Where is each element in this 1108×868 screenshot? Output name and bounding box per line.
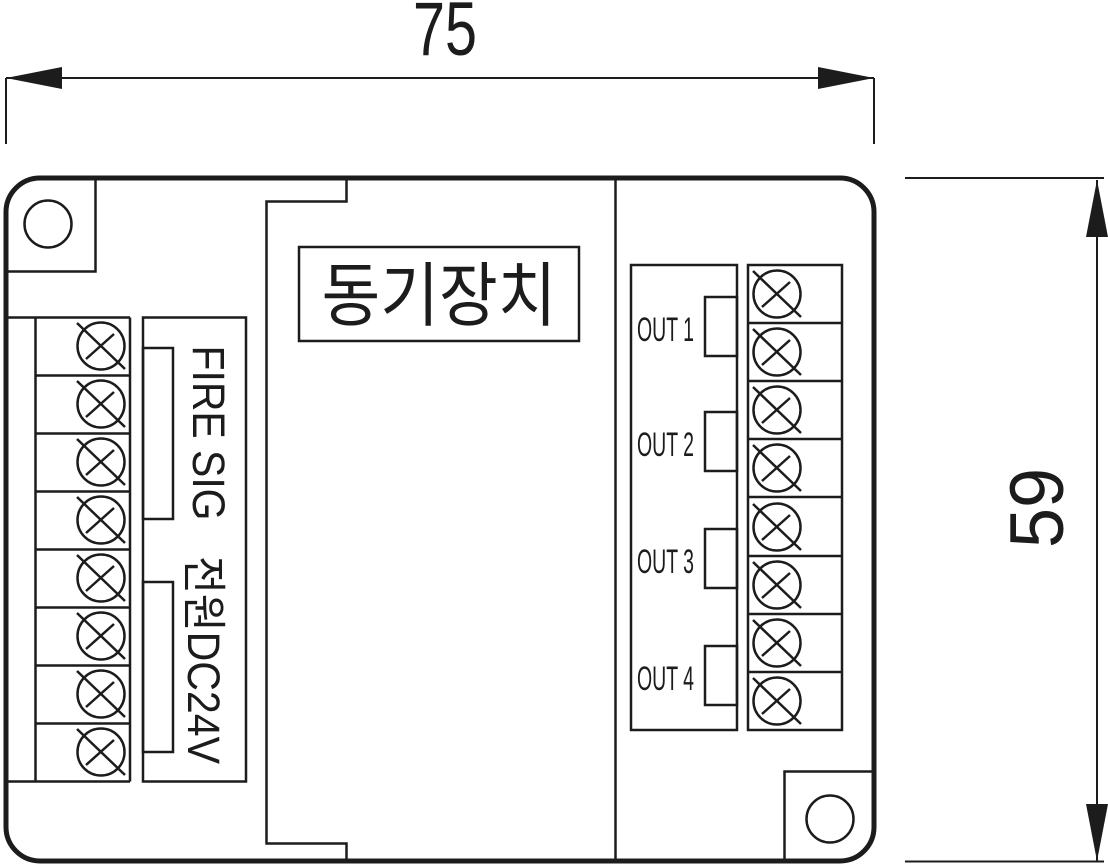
screw-terminal (753, 678, 801, 725)
screw-terminal (753, 620, 801, 667)
screw-terminal (753, 504, 801, 551)
output-label-box: OUT 1 OUT 2 OUT 3 OUT 4 (631, 265, 737, 730)
power-dc24v-label: 전원DC24V (178, 556, 229, 764)
screw-terminal (77, 555, 125, 602)
left-strip-cell-dividers (36, 376, 131, 724)
out3-label: OUT 3 (637, 543, 694, 581)
fire-sig-group-bracket (143, 348, 173, 519)
out4-label: OUT 4 (637, 660, 694, 698)
title-plate: 동기장치 (299, 247, 579, 341)
screw-terminal (77, 497, 125, 544)
width-arrow-right (818, 67, 874, 89)
width-dimension-label: 75 (413, 0, 477, 72)
mounting-hole-top-left (25, 201, 72, 248)
power-group-bracket (143, 582, 173, 752)
height-arrow-bottom (1086, 804, 1108, 861)
screw-terminal (77, 729, 125, 776)
width-arrow-left (6, 67, 62, 89)
mounting-tab-bottom-right-border (785, 772, 875, 862)
mounting-tab-top-left-border (6, 178, 96, 272)
screw-terminal (77, 439, 125, 486)
out1-label: OUT 1 (637, 311, 694, 349)
out4-pair-bracket (705, 646, 737, 705)
height-dimension-label: 59 (995, 468, 1080, 548)
left-terminal-strip (6, 318, 130, 782)
screw-terminal (753, 445, 801, 492)
mounting-tab-bottom-right (785, 772, 875, 862)
drawing-canvas: 75 59 동기장치 (0, 0, 1108, 868)
out2-label: OUT 2 (637, 426, 694, 464)
screw-terminal (77, 613, 125, 660)
out1-pair-bracket (705, 297, 737, 356)
screw-terminal (753, 562, 801, 609)
screw-terminal (753, 387, 801, 434)
mounting-hole-bottom-right (807, 796, 854, 843)
height-dimension: 59 (905, 178, 1108, 862)
height-arrow-top (1086, 180, 1108, 237)
screw-terminal (753, 271, 801, 318)
screw-terminal (77, 381, 125, 428)
screw-terminal (77, 671, 125, 718)
width-dimension: 75 (6, 0, 874, 144)
screw-terminal (753, 329, 801, 376)
mounting-tab-top-left (6, 178, 96, 272)
device-dimension-drawing: 75 59 동기장치 (0, 0, 1108, 868)
right-terminal-strip (748, 265, 842, 730)
device-title: 동기장치 (322, 257, 557, 335)
screw-terminal (77, 323, 125, 370)
out3-pair-bracket (705, 529, 737, 588)
right-strip-cell-dividers (748, 323, 842, 672)
fire-sig-label: FIRE SIG (183, 346, 234, 521)
out2-pair-bracket (705, 412, 737, 471)
left-label-box: FIRE SIG 전원DC24V (143, 318, 246, 782)
